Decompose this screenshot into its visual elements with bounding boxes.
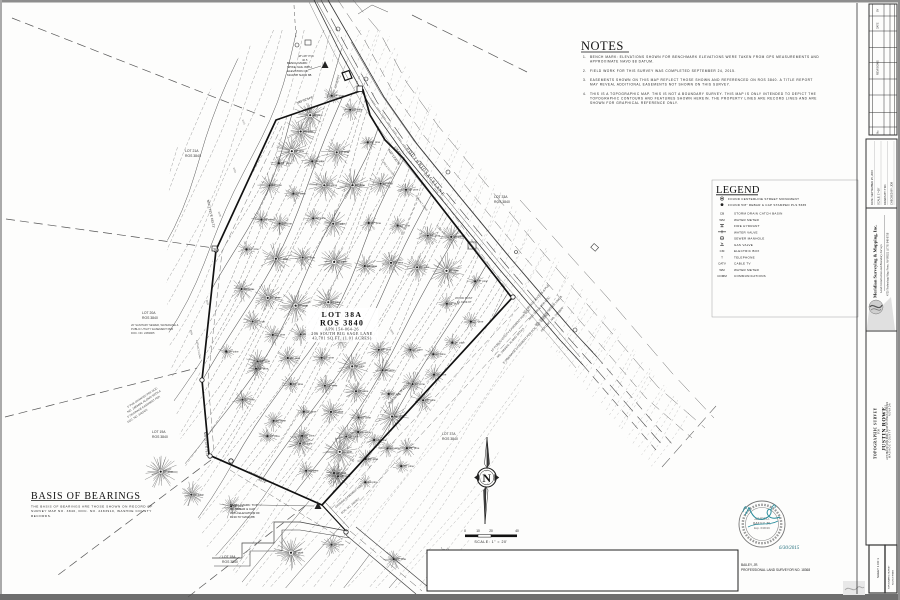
- svg-text:18" pine: 18" pine: [349, 434, 360, 438]
- svg-text:ELECTRIC BOX: ELECTRIC BOX: [734, 249, 760, 253]
- svg-text:WATER METER: WATER METER: [734, 218, 760, 222]
- svg-text:THE BASIS OF BEARINGS ARE THOS: THE BASIS OF BEARINGS ARE THOSE SHOWN ON…: [31, 505, 153, 509]
- svg-text:STORM DRAIN CATCH BASIN: STORM DRAIN CATCH BASIN: [734, 212, 783, 216]
- svg-text:6130.70' NAVD 88: 6130.70' NAVD 88: [230, 515, 255, 519]
- svg-text:12" pine: 12" pine: [336, 260, 347, 264]
- svg-text:WM: WM: [719, 218, 725, 222]
- svg-text:DATE: SEPTEMBER 25, 2015: DATE: SEPTEMBER 25, 2015: [870, 169, 874, 205]
- svg-text:22" pine: 22" pine: [371, 221, 382, 225]
- svg-text:12" pine: 12" pine: [315, 216, 326, 220]
- svg-text:SURVEY MAP NO. 3840, DOC. NO.: SURVEY MAP NO. 3840, DOC. NO. 2483910, W…: [31, 509, 152, 513]
- svg-text:10" pine: 10" pine: [278, 257, 289, 261]
- svg-text:12" pine: 12" pine: [400, 223, 411, 227]
- svg-text:LOT 19A: LOT 19A: [152, 430, 166, 434]
- svg-text:16" pine: 16" pine: [430, 233, 441, 237]
- svg-text:WM: WM: [719, 268, 725, 272]
- svg-text:18" pine: 18" pine: [306, 410, 317, 414]
- svg-text:GAS VALVE: GAS VALVE: [734, 243, 753, 247]
- svg-text:20" pine: 20" pine: [255, 319, 266, 323]
- svg-text:WATER VALVE: WATER VALVE: [734, 230, 758, 234]
- svg-text:10" pine: 10" pine: [403, 464, 414, 468]
- svg-text:20" pine: 20" pine: [333, 410, 344, 414]
- svg-text:CATV: CATV: [718, 262, 726, 266]
- svg-text:WASHOE COUNTY: WASHOE COUNTY: [888, 429, 891, 458]
- svg-text:206 SOUTH BIG SAGE LANE: 206 SOUTH BIG SAGE LANE: [311, 332, 373, 336]
- svg-text:18" pine: 18" pine: [282, 221, 293, 225]
- svg-text:20" pine: 20" pine: [275, 333, 286, 337]
- svg-text:10" pine: 10" pine: [296, 191, 307, 195]
- svg-text:18" pine: 18" pine: [281, 161, 292, 165]
- svg-text:SEWER MANHOLE: SEWER MANHOLE: [734, 237, 765, 241]
- svg-text:18" pine: 18" pine: [312, 113, 323, 117]
- svg-text:TELEPHONE: TELEPHONE: [734, 255, 755, 259]
- svg-text:14" pine: 14" pine: [455, 340, 466, 344]
- svg-text:No.: No.: [878, 130, 880, 134]
- svg-text:22" pine: 22" pine: [383, 181, 394, 185]
- svg-text:20" pine: 20" pine: [305, 255, 316, 259]
- svg-text:ROS 3840: ROS 3840: [142, 316, 158, 320]
- svg-text:FOR: FOR: [878, 429, 881, 434]
- svg-text:20" pine: 20" pine: [352, 108, 363, 112]
- svg-text:APPROXIMATE NAVD 88 DATUM.: APPROXIMATE NAVD 88 DATUM.: [590, 60, 654, 64]
- svg-text:20" pine: 20" pine: [393, 261, 404, 265]
- svg-text:LOT 33A: LOT 33A: [494, 195, 508, 199]
- svg-text:REVISIONS: REVISIONS: [876, 60, 880, 75]
- svg-text:CABLE TV: CABLE TV: [734, 262, 751, 266]
- svg-text:14" pine: 14" pine: [331, 300, 342, 304]
- svg-text:24" pine: 24" pine: [370, 140, 381, 144]
- svg-text:18" pine: 18" pine: [415, 382, 426, 386]
- svg-text:10" pine: 10" pine: [436, 352, 447, 356]
- svg-text:18" pine: 18" pine: [477, 279, 488, 283]
- svg-text:16" pine: 16" pine: [276, 419, 287, 423]
- svg-text:18" pine: 18" pine: [381, 348, 392, 352]
- svg-text:ROS 3840: ROS 3840: [152, 435, 168, 439]
- svg-text:20" pine: 20" pine: [298, 303, 309, 307]
- svg-text:22" pine: 22" pine: [304, 434, 315, 438]
- svg-text:DOC. NO. 2483905: DOC. NO. 2483905: [131, 331, 155, 335]
- svg-text:18" pine: 18" pine: [194, 492, 205, 496]
- svg-text:DATE: DATE: [877, 22, 880, 29]
- svg-text:PUBLIC UTILITY EASEMENT PER: PUBLIC UTILITY EASEMENT PER: [131, 327, 173, 331]
- svg-text:COMMUNICATIONS: COMMUNICATIONS: [734, 274, 766, 278]
- svg-text:MAY REVEAL ADDITIONAL EASEMENT: MAY REVEAL ADDITIONAL EASEMENTS NOT SHOW…: [590, 83, 730, 87]
- svg-text:APN 154-064-26: APN 154-064-26: [325, 328, 359, 332]
- svg-text:24" pine: 24" pine: [339, 150, 350, 154]
- svg-text:WATER METER: WATER METER: [734, 268, 760, 272]
- svg-text:20" pine: 20" pine: [290, 356, 301, 360]
- svg-text:Exp. 6/30/16: Exp. 6/30/16: [754, 526, 770, 530]
- svg-text:EASEMENTS SHOWN ON THIS MAP RE: EASEMENTS SHOWN ON THIS MAP REFLECT THOS…: [590, 78, 813, 82]
- svg-text:16" pine: 16" pine: [244, 287, 255, 291]
- svg-text:0: 0: [464, 529, 466, 533]
- svg-text:DRAWN BY: TDN: DRAWN BY: TDN: [883, 184, 887, 205]
- svg-text:20" pine: 20" pine: [396, 557, 407, 561]
- svg-text:LOT 21A: LOT 21A: [185, 149, 199, 153]
- svg-text:COMM: COMM: [717, 274, 727, 278]
- svg-text:22" pine: 22" pine: [409, 446, 420, 450]
- svg-text:40: 40: [515, 529, 519, 533]
- svg-text:20" pine: 20" pine: [385, 368, 396, 372]
- svg-text:1.: 1.: [583, 55, 586, 59]
- svg-text:16" pine: 16" pine: [260, 359, 271, 363]
- svg-text:TOPOGRAPHIC CONTOURS AND FEATU: TOPOGRAPHIC CONTOURS AND FEATURES SHOWN …: [590, 97, 817, 101]
- svg-text:20" pine: 20" pine: [342, 450, 353, 454]
- svg-text:20" pine: 20" pine: [334, 543, 345, 547]
- svg-text:Land Construction and Boundary: Land Construction and Boundary Surveys: [879, 243, 883, 294]
- svg-text:BENCH MARK: ELEVATIONS SHOWN F: BENCH MARK: ELEVATIONS SHOWN FOR BENCHMA…: [590, 55, 819, 59]
- svg-text:24" pine: 24" pine: [358, 389, 369, 393]
- svg-text:FIELD WORK FOR THIS SURVEY WAS: FIELD WORK FOR THIS SURVEY WAS COMPLETED…: [590, 69, 736, 73]
- svg-text:10: 10: [476, 529, 480, 533]
- svg-text:12" pine: 12" pine: [336, 471, 347, 475]
- svg-text:EL 6109.97': EL 6109.97': [457, 300, 472, 304]
- svg-text:LOT 20A: LOT 20A: [142, 311, 156, 315]
- svg-text:20' SANITARY SEWER, WATERLINE: 20' SANITARY SEWER, WATERLINE &: [131, 323, 179, 327]
- svg-text:12" pine: 12" pine: [327, 384, 338, 388]
- svg-text:BAILEY, JR.: BAILEY, JR.: [741, 563, 758, 567]
- svg-text:BY: BY: [877, 8, 880, 12]
- svg-text:Meridian Surveying & Mapping,: Meridian Surveying & Mapping, Inc.: [873, 225, 878, 298]
- svg-text:SCOTCH PINES: SCOTCH PINES: [893, 569, 895, 585]
- svg-text:T: T: [721, 255, 723, 259]
- svg-text:22" pine: 22" pine: [368, 457, 379, 461]
- svg-text:24" pine: 24" pine: [270, 296, 281, 300]
- svg-text:14" pine: 14" pine: [249, 247, 260, 251]
- svg-text:10" pine: 10" pine: [361, 415, 372, 419]
- svg-text:LOT 18A: LOT 18A: [222, 555, 236, 559]
- svg-text:3.: 3.: [583, 78, 586, 82]
- svg-text:CHECKED BY: JDB: CHECKED BY: JDB: [890, 182, 894, 205]
- svg-text:16" pine: 16" pine: [408, 188, 419, 192]
- svg-text:18" pine: 18" pine: [258, 367, 269, 371]
- svg-text:CB: CB: [720, 212, 724, 216]
- svg-text:SHEET 1 OF 1: SHEET 1 OF 1: [876, 558, 880, 578]
- svg-text:22" pine: 22" pine: [473, 319, 484, 323]
- svg-text:14" pine: 14" pine: [272, 183, 283, 187]
- svg-text:10" pine: 10" pine: [308, 469, 319, 473]
- svg-text:14" pine: 14" pine: [264, 217, 275, 221]
- svg-text:NOTES: NOTES: [581, 39, 624, 53]
- svg-text:16" pine: 16" pine: [449, 269, 460, 273]
- svg-text:2.: 2.: [583, 69, 586, 73]
- svg-text:16" pine: 16" pine: [324, 356, 335, 360]
- svg-text:22" pine: 22" pine: [294, 149, 305, 153]
- svg-text:20" pine: 20" pine: [390, 446, 401, 450]
- svg-text:SCALE: 1"=20': SCALE: 1"=20': [877, 187, 881, 205]
- svg-text:ROS 3840: ROS 3840: [494, 200, 510, 204]
- svg-text:FIRE HYDRANT: FIRE HYDRANT: [734, 224, 760, 228]
- svg-text:16" pine: 16" pine: [228, 349, 239, 353]
- svg-text:LEGEND: LEGEND: [716, 185, 760, 196]
- svg-text:14" pine: 14" pine: [413, 348, 424, 352]
- svg-text:ROS 3840: ROS 3840: [185, 154, 201, 158]
- svg-text:4.: 4.: [583, 92, 586, 96]
- svg-text:RECORDS.: RECORDS.: [31, 514, 52, 518]
- svg-text:TOPOGRAPHIC SURVEY: TOPOGRAPHIC SURVEY: [888, 565, 891, 589]
- svg-text:20" pine: 20" pine: [302, 441, 313, 445]
- svg-text:LOT 37A: LOT 37A: [442, 432, 456, 436]
- svg-text:10" pine: 10" pine: [270, 434, 281, 438]
- svg-text:ROS 3840: ROS 3840: [222, 560, 238, 564]
- svg-text:THIS IS A TOPOGRAPHIC MAP. THI: THIS IS A TOPOGRAPHIC MAP. THIS IS NOT A…: [590, 92, 816, 96]
- svg-text:24" pine: 24" pine: [425, 398, 436, 402]
- svg-text:PROFESSIONAL LAND SURVEYOR NO.: PROFESSIONAL LAND SURVEYOR NO. 18368: [741, 568, 810, 572]
- svg-text:16" pine: 16" pine: [293, 551, 304, 555]
- svg-text:12" pine: 12" pine: [335, 222, 346, 226]
- svg-text:24" pine: 24" pine: [354, 364, 365, 368]
- svg-text:SCALE: 1" = 20': SCALE: 1" = 20': [474, 540, 507, 544]
- svg-text:FOUND CENTERLINE STREET MONUME: FOUND CENTERLINE STREET MONUMENT: [728, 197, 799, 201]
- svg-text:24" pine: 24" pine: [419, 265, 430, 269]
- svg-text:FOUND 5/8" REBAR & CAP STAMPED: FOUND 5/8" REBAR & CAP STAMPED PLS 5665: [728, 203, 807, 207]
- svg-text:18" pine: 18" pine: [367, 264, 378, 268]
- svg-text:6/30/2015: 6/30/2015: [779, 546, 800, 551]
- svg-text:SHOWN FOR GRAPHICAL REFERENCE: SHOWN FOR GRAPHICAL REFERENCE ONLY.: [590, 101, 679, 105]
- svg-text:24" pine: 24" pine: [360, 430, 371, 434]
- svg-text:24" pine: 24" pine: [368, 480, 379, 484]
- svg-text:12" pine: 12" pine: [355, 183, 366, 187]
- svg-text:18" pine: 18" pine: [293, 382, 304, 386]
- svg-text:ROS 3840: ROS 3840: [442, 437, 458, 441]
- svg-text:NEVADA: NEVADA: [888, 403, 891, 416]
- svg-text:20: 20: [489, 529, 493, 533]
- svg-text:N: N: [482, 471, 491, 485]
- svg-text:40.5: 40.5: [302, 58, 308, 62]
- svg-text:22" pine: 22" pine: [163, 469, 174, 473]
- svg-text:22" pine: 22" pine: [245, 398, 256, 402]
- svg-text:20" pine: 20" pine: [303, 129, 314, 133]
- svg-text:ROS 3840: ROS 3840: [320, 319, 364, 328]
- svg-text:14" pine: 14" pine: [314, 159, 325, 163]
- svg-text:4725 Technology Way, Reno, NV: 4725 Technology Way, Reno, NV 89521 | (7…: [887, 232, 890, 296]
- svg-text:CM: CM: [720, 249, 725, 253]
- svg-text:6110.58' NAVD 88.: 6110.58' NAVD 88.: [287, 73, 312, 77]
